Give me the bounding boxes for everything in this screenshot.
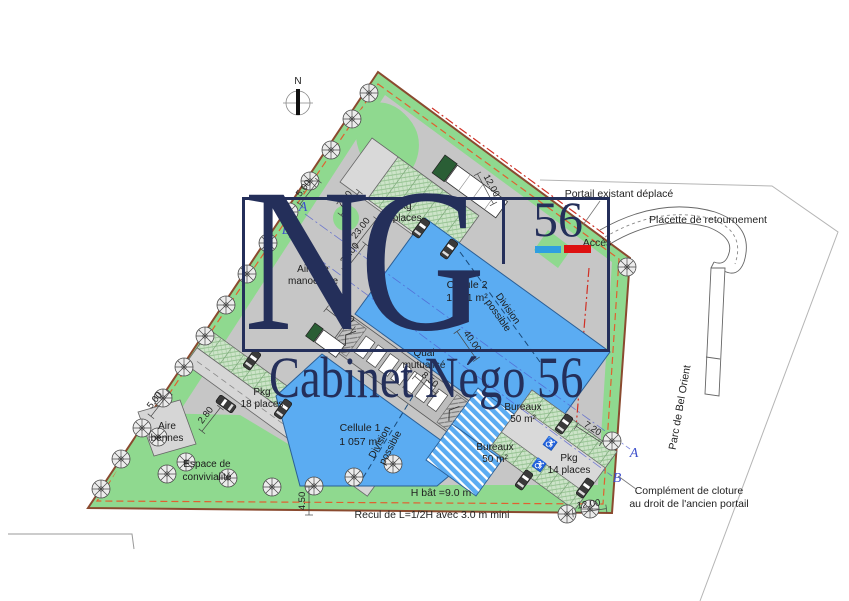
- placette-note: Placette de retournement: [649, 214, 767, 226]
- recul-note: Recul de L=1/2H avec 3.0 m mini: [355, 509, 510, 521]
- section-b-marker: B: [613, 471, 622, 486]
- bennes-label: bennes: [151, 433, 184, 444]
- tree-icon: [558, 505, 576, 523]
- site-plan-screenshot: Parc de Bel Orient: [0, 0, 849, 601]
- pkg14-label: Pkg: [560, 453, 577, 464]
- tree-icon: [133, 419, 151, 437]
- bureaux2-area: 50 m²: [482, 454, 508, 465]
- bureaux1-area: 50 m²: [510, 414, 536, 425]
- tree-icon: [263, 478, 281, 496]
- tree-icon: [175, 358, 193, 376]
- tree-icon: [217, 296, 235, 314]
- watermark-blue-bar: [535, 246, 561, 253]
- tree-icon: [603, 432, 621, 450]
- convivialite-label: Espace de: [183, 459, 231, 470]
- svg-text:4.50: 4.50: [297, 492, 308, 511]
- tree-icon: [92, 480, 110, 498]
- tree-icon: [196, 327, 214, 345]
- watermark-number: 56: [533, 194, 583, 244]
- cloture-note: Complément de cloture: [635, 485, 744, 497]
- tree-icon: [112, 450, 130, 468]
- north-label: N: [294, 76, 301, 87]
- watermark-separator: [502, 197, 505, 264]
- convivialite-label: convivialité: [183, 472, 232, 483]
- hbat-note: H bât =9.0 m: [411, 487, 472, 499]
- cloture-note: au droit de l'ancien portail: [629, 498, 748, 510]
- watermark-company-name: Cabinet Négo 56: [269, 349, 583, 407]
- tree-icon: [345, 468, 363, 486]
- tree-icon: [343, 110, 361, 128]
- bureaux2-label: Bureaux: [476, 442, 513, 453]
- section-a-marker: A: [629, 446, 639, 461]
- tree-icon: [360, 84, 378, 102]
- tree-icon: [158, 465, 176, 483]
- watermark-red-bar: [564, 245, 591, 253]
- pkg14-label: 14 places: [548, 465, 591, 476]
- tree-icon: [618, 258, 636, 276]
- bennes-label: Aire: [158, 421, 176, 432]
- watermark-monogram: NG: [244, 158, 475, 363]
- cellule1-label: Cellule 1: [340, 422, 381, 434]
